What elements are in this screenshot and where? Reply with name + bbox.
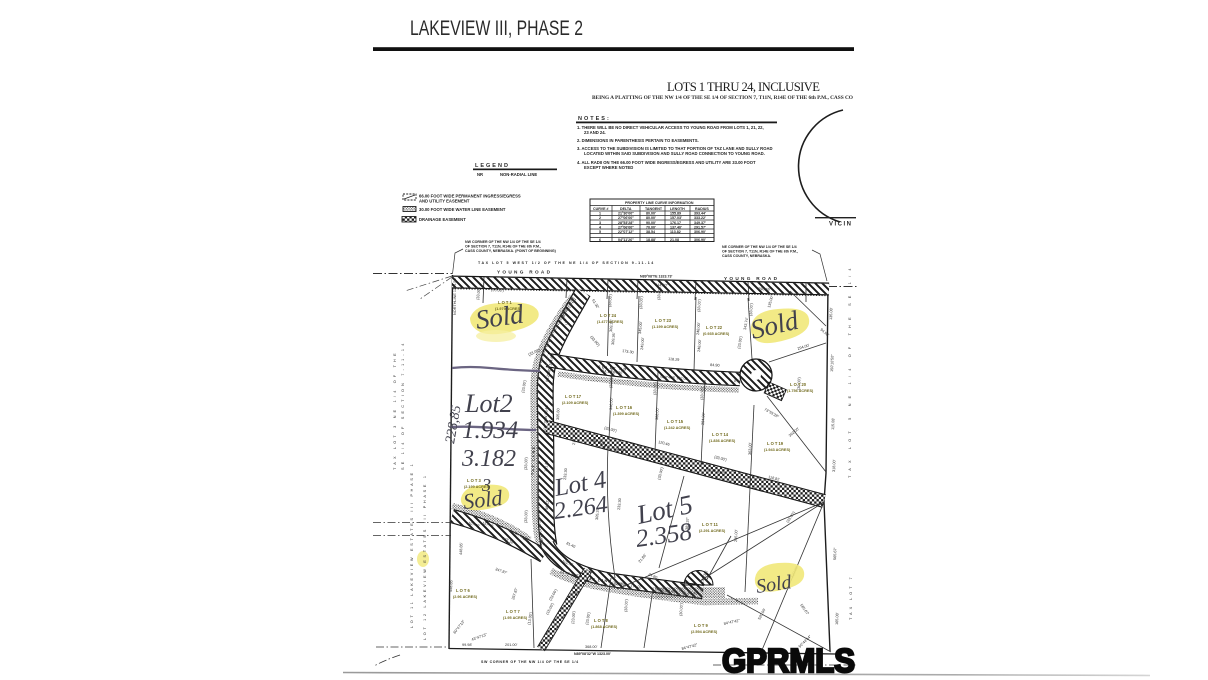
svg-text:368.00': 368.00': [585, 645, 598, 649]
svg-text:L O T 14: L O T 14: [712, 432, 729, 437]
svg-text:PROPERTY LINE CURVE INFORMA: PROPERTY LINE CURVE INFORMATION: [625, 201, 694, 205]
svg-text:(33.00'): (33.00'): [624, 598, 629, 612]
svg-text:CURVE #: CURVE #: [593, 207, 609, 211]
svg-text:64.45: 64.45: [688, 591, 698, 596]
svg-text:344.80': 344.80': [655, 283, 668, 288]
svg-text:176.17: 176.17: [670, 221, 681, 225]
svg-text:21°30'00": 21°30'00": [618, 212, 634, 216]
svg-text:294.00': 294.00': [701, 412, 706, 425]
svg-text:(2.96 ACRES): (2.96 ACRES): [453, 595, 478, 599]
svg-text:GPRMLS: GPRMLS: [722, 642, 855, 679]
svg-text:448.85': 448.85': [449, 579, 453, 592]
svg-text:245.00': 245.00': [734, 529, 738, 542]
svg-text:L O T 22: L O T 22: [706, 325, 723, 330]
svg-text:5: 5: [599, 230, 601, 234]
svg-text:L O T 11: L O T 11: [702, 522, 719, 527]
svg-text:Lot2: Lot2: [464, 389, 513, 418]
svg-text:SE 1/4 OF SECTION 7-11-14: SE 1/4 OF SECTION 7-11-14: [401, 340, 405, 470]
svg-text:393.44': 393.44': [694, 212, 706, 216]
svg-text:318.00': 318.00': [832, 459, 836, 472]
svg-text:BEING A PLATTING OF THE NW 1/4: BEING A PLATTING OF THE NW 1/4 OF THE SE…: [592, 95, 853, 101]
svg-text:L O T 15: L O T 15: [667, 419, 684, 424]
svg-text:70.00': 70.00': [646, 225, 656, 229]
svg-text:VICIN: VICIN: [829, 222, 853, 228]
svg-text:18.88': 18.88': [646, 238, 656, 242]
svg-text:(1.836 ACRES): (1.836 ACRES): [709, 439, 736, 443]
svg-text:L O T 8: L O T 8: [594, 618, 609, 623]
svg-text:CASS COUNTY, NEBRASKA. (POINT: CASS COUNTY, NEBRASKA. (POINT OF BEGINNI…: [465, 249, 557, 253]
svg-text:27°06'00": 27°06'00": [618, 216, 634, 220]
svg-text:N89°08'TE 1323.73': N89°08'TE 1323.73': [640, 275, 672, 279]
svg-text:113.82: 113.82: [670, 230, 681, 234]
svg-text:TAX LOT 5 WEST 1/2 OF: TAX LOT 5 WEST 1/2 OF THE NE 1/4 OF SECT…: [478, 261, 655, 265]
svg-text:22°07'12": 22°07'12": [618, 230, 634, 234]
svg-text:L O T 3: L O T 3: [467, 478, 482, 483]
svg-text:(30.00'): (30.00'): [679, 602, 684, 616]
svg-text:(33.00'): (33.00'): [653, 381, 658, 395]
svg-text:(1.242 ACRES): (1.242 ACRES): [664, 426, 691, 430]
svg-text:23 AND 24.: 23 AND 24.: [584, 130, 606, 135]
svg-text:448.85': 448.85': [459, 542, 463, 555]
svg-text:TAX LOT 5 NE 1/4 OF THE S: TAX LOT 5 NE 1/4 OF THE SE 1/4: [848, 263, 852, 478]
svg-text:DELTA: DELTA: [620, 207, 632, 211]
svg-text:YOUNG ROAD: YOUNG ROAD: [724, 276, 779, 281]
svg-text:(1.199 ACRES): (1.199 ACRES): [652, 325, 679, 329]
svg-text:165.08': 165.08': [835, 612, 839, 625]
svg-text:201.00': 201.00': [505, 643, 518, 647]
svg-text:(1.95 ACRES): (1.95 ACRES): [503, 616, 528, 620]
svg-text:(2.291 ACRES): (2.291 ACRES): [699, 529, 726, 533]
svg-text:NORTHLINE 1314.50': NORTHLINE 1314.50': [453, 277, 457, 315]
svg-text:565.67': 565.67': [833, 547, 837, 560]
svg-text:80.00': 80.00': [646, 216, 656, 220]
svg-text:NON-RADIAL LINE: NON-RADIAL LINE: [500, 172, 537, 177]
svg-text:346.00': 346.00': [609, 397, 614, 410]
svg-text:L O T 16: L O T 16: [616, 405, 633, 410]
svg-text:LOTS 1 THRU 24, INCLUSIVE: LOTS 1 THRU 24, INCLUSIVE: [667, 80, 820, 94]
svg-text:28°53'28": 28°53'28": [618, 221, 634, 225]
svg-text:131.40': 131.40': [544, 460, 549, 472]
svg-text:L O T 7: L O T 7: [506, 609, 521, 614]
svg-text:LOT 12 LAKEVIEW ESTATES I: LOT 12 LAKEVIEW ESTATES III PHASE 1: [423, 473, 427, 640]
svg-text:L O T 6: L O T 6: [456, 588, 471, 593]
svg-text:3.182: 3.182: [461, 446, 516, 472]
svg-text:(33.00'): (33.00'): [700, 386, 705, 400]
svg-text:4: 4: [599, 225, 601, 229]
svg-text:(33.00'): (33.00'): [697, 298, 702, 312]
svg-text:3: 3: [599, 221, 601, 225]
svg-text:RADIUS: RADIUS: [695, 207, 709, 211]
svg-text:L O T 9: L O T 9: [694, 623, 709, 628]
svg-text:27°06'00": 27°06'00": [618, 225, 634, 229]
svg-text:LENGTH: LENGTH: [670, 207, 685, 211]
svg-text:155.89: 155.89: [670, 212, 681, 216]
svg-text:OF SECTION 7, T11N, R14E OF TH: OF SECTION 7, T11N, R14E OF THE 6th P.M.…: [465, 245, 541, 249]
svg-text:NR: NR: [477, 172, 483, 177]
svg-text:363.00': 363.00': [748, 442, 752, 455]
svg-text:(1.477 ACRES): (1.477 ACRES): [597, 320, 624, 324]
svg-text:(33.00'): (33.00'): [491, 288, 505, 293]
svg-text:99.98': 99.98': [462, 643, 473, 647]
svg-text:LOT 11 LAKEVIEW ESTATES I: LOT 11 LAKEVIEW ESTATES III PHASE 1: [410, 462, 414, 628]
svg-text:TANGENT: TANGENT: [645, 207, 663, 211]
svg-text:L O T 20: L O T 20: [790, 382, 807, 387]
svg-text:(33.00'): (33.00'): [609, 374, 614, 388]
svg-text:8.18: 8.18: [734, 379, 742, 383]
svg-text:290.46': 290.46': [758, 287, 771, 292]
svg-text:38.54: 38.54: [646, 230, 655, 234]
svg-text:291.57': 291.57': [694, 225, 706, 229]
svg-text:211.30: 211.30: [572, 434, 577, 446]
svg-text:YOUNG ROAD: YOUNG ROAD: [497, 270, 552, 275]
svg-text:2: 2: [599, 216, 601, 220]
svg-text:(33.00'): (33.00'): [524, 509, 528, 523]
svg-text:L O T 23: L O T 23: [655, 318, 672, 323]
svg-text:333.22': 333.22': [694, 216, 706, 220]
svg-text:349.37': 349.37': [694, 221, 706, 225]
svg-text:(1.979 ACRES): (1.979 ACRES): [495, 307, 522, 311]
svg-text:EXCEPT WHERE NOTED: EXCEPT WHERE NOTED: [584, 165, 633, 170]
svg-text:(1.756 ACRES): (1.756 ACRES): [787, 389, 814, 393]
svg-text:115.08': 115.08': [831, 418, 835, 430]
svg-text:21.08: 21.08: [670, 238, 679, 242]
svg-text:AND UTILITY EASEMENT: AND UTILITY EASEMENT: [419, 199, 470, 204]
svg-text:306.90': 306.90': [694, 238, 706, 242]
svg-text:(1.399 ACRES): (1.399 ACRES): [613, 412, 640, 416]
svg-text:CASS COUNTY, NEBRASKA.: CASS COUNTY, NEBRASKA.: [722, 254, 771, 258]
svg-text:DRAINAGE EASEMENT: DRAINAGE EASEMENT: [419, 217, 466, 222]
svg-text:NE CORNER OF THE NW 1/4 OF THE: NE CORNER OF THE NW 1/4 OF THE SE 1/4: [722, 245, 797, 249]
svg-text:30.00 FOOT WIDE WATER LINE EAS: 30.00 FOOT WIDE WATER LINE EASEMENT: [419, 207, 506, 212]
svg-text:LAKEVIEW III, PHASE 2: LAKEVIEW III, PHASE 2: [410, 16, 583, 40]
svg-text:84.90: 84.90: [710, 363, 720, 368]
svg-text:(33.00'): (33.00'): [639, 295, 644, 309]
svg-text:(1.868 ACRES): (1.868 ACRES): [591, 625, 618, 629]
svg-text:(0.935 ACRES): (0.935 ACRES): [703, 332, 730, 336]
svg-text:306.90': 306.90': [694, 230, 706, 234]
svg-text:6: 6: [599, 238, 601, 242]
svg-text:LOCATED WITHIN SAID SUBDIVISIO: LOCATED WITHIN SAID SUBDIVISION AND SULL…: [584, 151, 765, 156]
svg-text:80.00': 80.00': [646, 212, 656, 216]
svg-text:(2.199 ACRES): (2.199 ACRES): [464, 485, 491, 489]
svg-text:135.08': 135.08': [829, 307, 833, 320]
svg-text:SW CORNER OF THE NW 1/4 OF THE: SW CORNER OF THE NW 1/4 OF THE SE 1/4: [481, 660, 579, 664]
svg-text:L O T 1: L O T 1: [498, 300, 513, 305]
svg-text:04°11'26": 04°11'26": [618, 238, 634, 242]
svg-text:TAX LOT 3 NE 1/4 OF THE: TAX LOT 3 NE 1/4 OF THE: [393, 350, 397, 470]
svg-text:L O T 17: L O T 17: [565, 394, 582, 399]
svg-text:N89°08'32"W 1323.00': N89°08'32"W 1323.00': [574, 652, 611, 656]
svg-text:(1.943 ACRES): (1.943 ACRES): [764, 448, 791, 452]
svg-text:(33.00'): (33.00'): [608, 293, 613, 307]
svg-text:2. DIMENSIONS IN PARENTHESIS: 2. DIMENSIONS IN PARENTHESIS PERTAIN TO …: [577, 138, 699, 143]
svg-text:1: 1: [599, 212, 601, 216]
svg-text:1.934: 1.934: [462, 417, 518, 444]
svg-text:157.03': 157.03': [670, 216, 682, 220]
svg-text:TAX LOT 7: TAX LOT 7: [849, 574, 853, 620]
svg-text:LEGEND: LEGEND: [475, 163, 510, 169]
svg-text:368.00': 368.00': [655, 407, 660, 420]
svg-text:90.00': 90.00': [646, 221, 656, 225]
svg-text:OF SECTION 7, T11N, R14E OF TH: OF SECTION 7, T11N, R14E OF THE 6th P.M.…: [722, 250, 798, 254]
svg-text:305.80: 305.80: [556, 408, 560, 420]
svg-text:(33.00'): (33.00'): [524, 456, 528, 470]
svg-text:(33.00'): (33.00'): [657, 286, 662, 300]
svg-text:NOTES:: NOTES:: [578, 116, 611, 122]
svg-text:137.40': 137.40': [670, 225, 682, 229]
svg-text:L O T 24: L O T 24: [600, 313, 617, 318]
svg-text:NW CORNER OF THE NW 1/4 OF THE: NW CORNER OF THE NW 1/4 OF THE SE 1/4: [465, 240, 541, 244]
svg-text:150'10'50": 150'10'50": [830, 354, 835, 372]
svg-text:L O T 19: L O T 19: [767, 441, 784, 446]
svg-text:(2.594 ACRES): (2.594 ACRES): [691, 630, 718, 634]
svg-text:(2.109 ACRES): (2.109 ACRES): [562, 401, 589, 405]
